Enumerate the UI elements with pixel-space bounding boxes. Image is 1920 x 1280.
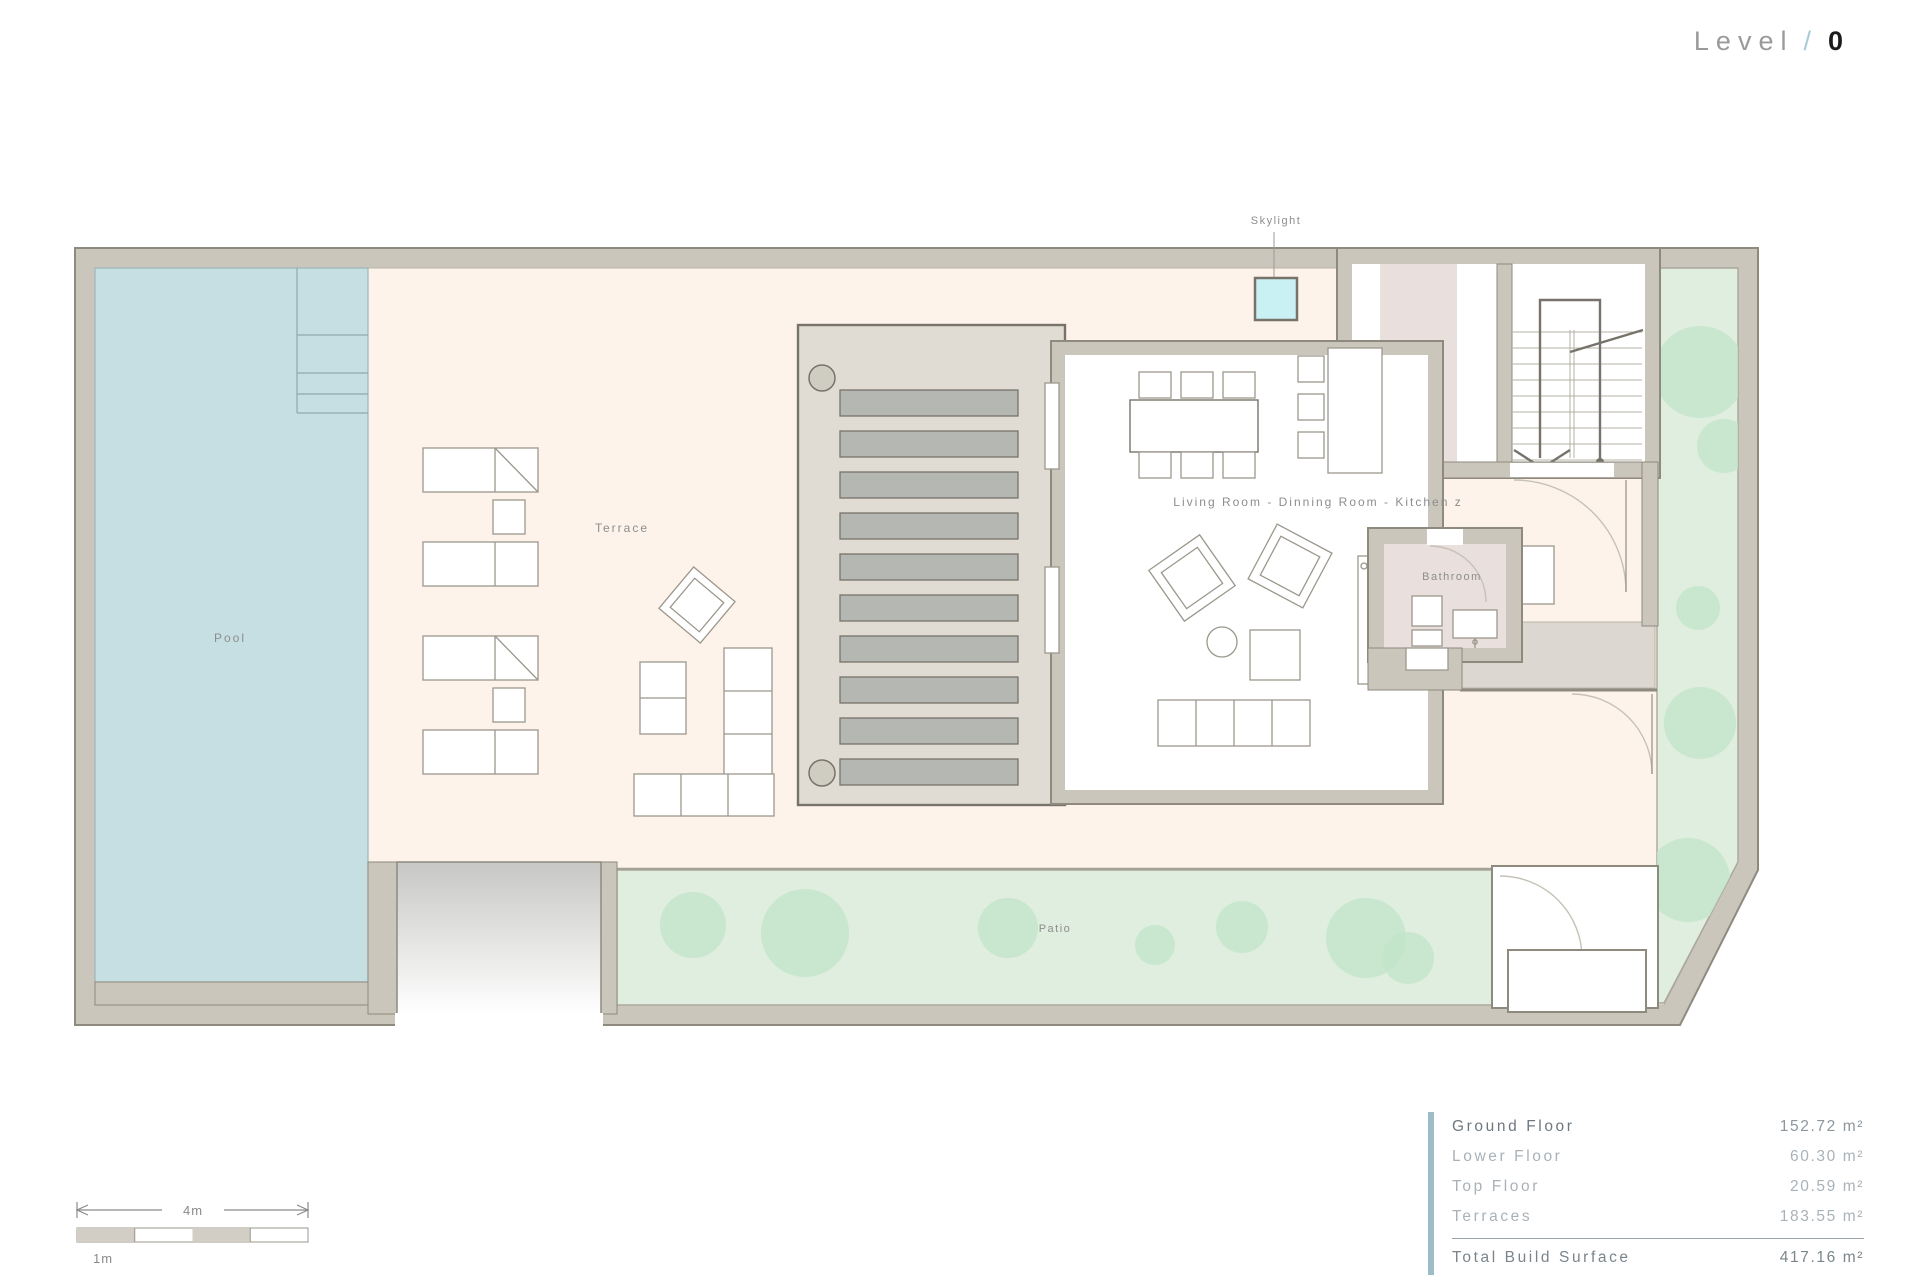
floor-plan-canvas: Skylight Pool Terrace Living Room - Dinn… xyxy=(0,0,1920,1280)
table-row: Terraces 183.55 m² xyxy=(1452,1202,1864,1232)
row-value: 20.59 m² xyxy=(1790,1178,1864,1196)
bathroom-closet xyxy=(1406,648,1448,670)
side-table-round xyxy=(1207,627,1237,657)
porch-column xyxy=(809,365,835,391)
sliding-door-panel xyxy=(1045,567,1059,653)
table-row: Top Floor 20.59 m² xyxy=(1452,1172,1864,1202)
bathroom xyxy=(1368,528,1522,662)
table-row: Lower Floor 60.30 m² xyxy=(1452,1142,1864,1172)
side-table xyxy=(493,500,525,534)
table-row: Ground Floor 152.72 m² xyxy=(1452,1112,1864,1142)
side-table xyxy=(493,688,525,722)
table-accent-bar xyxy=(1428,1112,1434,1275)
pool-label: Pool xyxy=(214,631,246,645)
bathroom-label: Bathroom xyxy=(1422,571,1482,583)
patio-label: Patio xyxy=(1039,923,1072,935)
patio-area xyxy=(617,869,1492,1005)
row-label: Terraces xyxy=(1452,1208,1532,1226)
total-value: 417.16 m² xyxy=(1780,1249,1864,1267)
sofa xyxy=(1158,700,1310,746)
pool-edge-wall xyxy=(95,982,368,1005)
row-value: 183.55 m² xyxy=(1780,1208,1864,1226)
side-table-square xyxy=(1250,630,1300,680)
scale-bar: 4m 1m xyxy=(77,1202,308,1266)
dining-set xyxy=(1130,372,1258,478)
drawing-title: Level/0 xyxy=(1694,26,1850,57)
skylight-label: Skylight xyxy=(1251,215,1302,227)
level-label: Level xyxy=(1694,26,1794,56)
toilet xyxy=(1412,596,1442,646)
level-separator: / xyxy=(1803,26,1818,56)
table-divider xyxy=(1452,1238,1864,1239)
row-label: Lower Floor xyxy=(1452,1148,1562,1166)
porch-column xyxy=(809,760,835,786)
area-summary-table: Ground Floor 152.72 m² Lower Floor 60.30… xyxy=(1428,1112,1864,1275)
covered-porch xyxy=(798,325,1065,805)
living-room-label: Living Room - Dinning Room - Kitchen z xyxy=(1173,495,1462,509)
driveway-ramp xyxy=(368,862,617,1027)
row-value: 152.72 m² xyxy=(1780,1118,1864,1136)
level-number: 0 xyxy=(1828,26,1850,56)
kitchen-island xyxy=(1298,348,1382,473)
row-label: Top Floor xyxy=(1452,1178,1540,1196)
scale-unit-label: 1m xyxy=(93,1251,113,1266)
sliding-door-panel xyxy=(1045,383,1059,469)
rear-entry-notch xyxy=(1492,866,1658,1012)
row-label: Ground Floor xyxy=(1452,1118,1575,1136)
table-total-row: Total Build Surface 417.16 m² xyxy=(1452,1241,1864,1275)
scale-span-label: 4m xyxy=(183,1203,203,1218)
row-value: 60.30 m² xyxy=(1790,1148,1864,1166)
terrace-label: Terrace xyxy=(595,521,649,535)
total-label: Total Build Surface xyxy=(1452,1249,1631,1267)
